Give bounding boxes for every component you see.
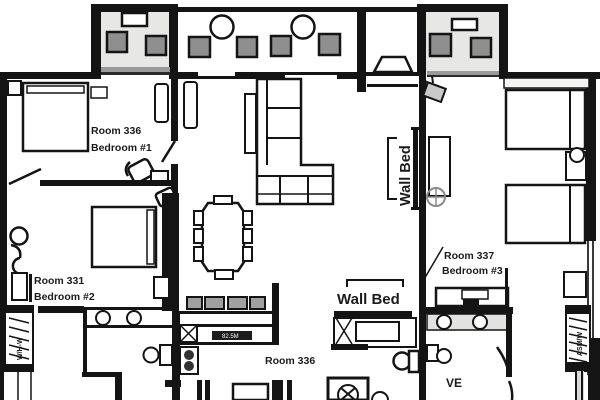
svg-text:Wall Bed: Wall Bed xyxy=(398,145,414,206)
svg-text:Room 331: Room 331 xyxy=(34,275,84,287)
svg-text:Wall Bed: Wall Bed xyxy=(337,291,400,308)
svg-text:VE: VE xyxy=(446,376,462,390)
svg-text:ASM/W: ASM/W xyxy=(577,332,584,357)
svg-text:82.5M: 82.5M xyxy=(222,334,239,340)
svg-text:Room 336: Room 336 xyxy=(265,355,315,367)
svg-text:Bedroom #2: Bedroom #2 xyxy=(34,291,95,303)
svg-text:Room 337: Room 337 xyxy=(444,250,494,262)
svg-text:Room 336: Room 336 xyxy=(91,125,141,137)
svg-text:W/H-W: W/H-W xyxy=(17,337,24,360)
svg-text:Bedroom #1: Bedroom #1 xyxy=(91,142,152,154)
svg-text:Bedroom #3: Bedroom #3 xyxy=(442,265,503,277)
